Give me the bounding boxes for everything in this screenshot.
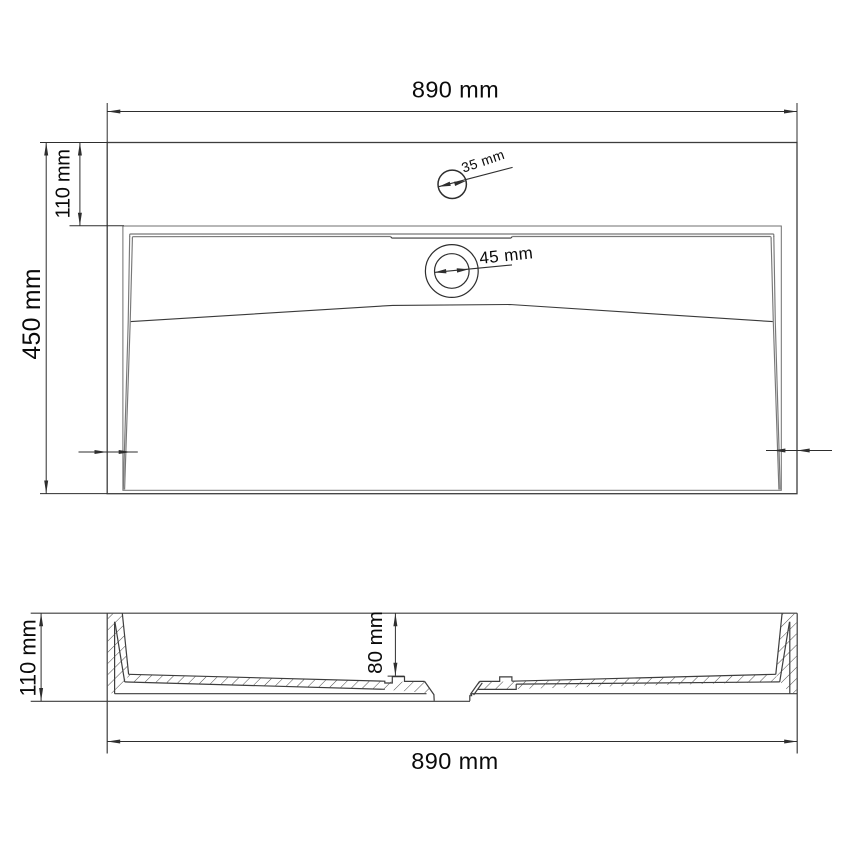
svg-text:80 mm: 80 mm [364, 611, 387, 674]
svg-text:450 mm: 450 mm [19, 268, 46, 359]
svg-text:110 mm: 110 mm [16, 619, 41, 696]
svg-text:110 mm: 110 mm [52, 149, 74, 218]
svg-text:890 mm: 890 mm [412, 76, 499, 102]
svg-text:890 mm: 890 mm [411, 748, 498, 774]
